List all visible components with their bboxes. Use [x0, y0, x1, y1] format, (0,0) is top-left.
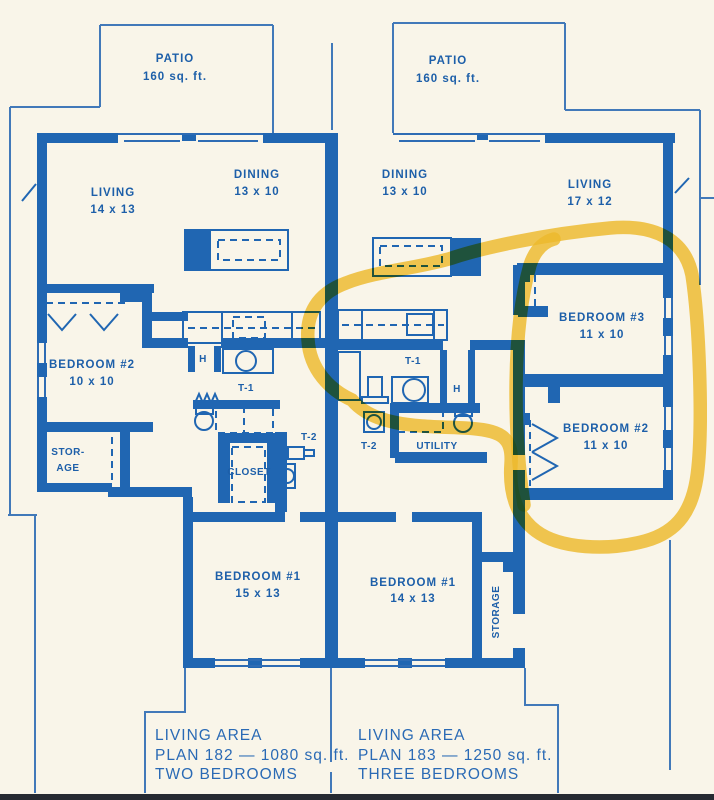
living-right-label: LIVING: [568, 179, 612, 191]
living-left-label: LIVING: [91, 187, 135, 199]
patio-right-area: 160 sq. ft.: [416, 73, 480, 85]
plan-summaries: LIVING AREA PLAN 182 — 1080 sq. ft. TWO …: [155, 727, 552, 783]
sink-icon: [236, 351, 256, 371]
utility-label: UTILITY: [416, 441, 457, 452]
plan182-line1: LIVING AREA: [155, 727, 262, 744]
window-icons: [37, 298, 673, 666]
bedroom2-right-dims: 11 x 10: [584, 440, 629, 452]
bedroom3-right-dims: 11 x 10: [580, 329, 625, 341]
patio-right-label: PATIO: [429, 55, 467, 67]
bedroom3-right-label: BEDROOM #3: [559, 312, 645, 324]
dining-right-label: DINING: [382, 169, 428, 181]
storage-right-label: STORAGE: [491, 586, 502, 639]
vanity-icon: [223, 349, 273, 373]
bedroom2-left-label: BEDROOM #2: [49, 359, 135, 371]
storage-left-label-2: AGE: [56, 463, 79, 474]
heater-left-label: H: [199, 354, 207, 365]
bedroom2-left-dims: 10 x 10: [69, 376, 114, 388]
scan-edge: [0, 794, 714, 800]
living-right-dims: 17 x 12: [567, 196, 612, 208]
bath2-left-label: T-2: [301, 432, 317, 443]
plan183-line2: PLAN 183 — 1250 sq. ft.: [358, 747, 552, 764]
plan182-line3: TWO BEDROOMS: [155, 766, 298, 783]
storage-left-label-1: STOR-: [51, 447, 84, 458]
plan183-line3: THREE BEDROOMS: [358, 766, 519, 783]
floor-plan-drawing: PATIO 160 sq. ft. PATIO 160 sq. ft. LIVI…: [0, 0, 714, 800]
bath1-left-label: T-1: [238, 383, 254, 394]
bedroom1-right-label: BEDROOM #1: [370, 577, 456, 589]
bath1-right-label: T-1: [405, 356, 421, 367]
bath2-right-label: T-2: [361, 441, 377, 452]
floor-plan-scan: PATIO 160 sq. ft. PATIO 160 sq. ft. LIVI…: [0, 0, 714, 800]
living-left-dims: 14 x 13: [90, 204, 135, 216]
dining-left-dims: 13 x 10: [234, 186, 279, 198]
sink-icon: [403, 379, 425, 401]
patio-left-area: 160 sq. ft.: [143, 71, 207, 83]
dining-right-dims: 13 x 10: [382, 186, 427, 198]
dining-left-label: DINING: [234, 169, 280, 181]
vanity-icon: [392, 377, 428, 403]
heater-right-label: H: [453, 384, 461, 395]
bedroom1-left-label: BEDROOM #1: [215, 571, 301, 583]
bedroom2-right-label: BEDROOM #2: [563, 423, 649, 435]
bedroom1-right-dims: 14 x 13: [390, 593, 435, 605]
closet-left-label: CLOSET: [227, 467, 271, 478]
plan182-line2: PLAN 182 — 1080 sq. ft.: [155, 747, 349, 764]
bedroom1-left-dims: 15 x 13: [235, 588, 280, 600]
washer-icon: [288, 447, 304, 459]
patio-left-label: PATIO: [156, 53, 194, 65]
party-wall: [325, 133, 338, 668]
plan183-line1: LIVING AREA: [358, 727, 465, 744]
